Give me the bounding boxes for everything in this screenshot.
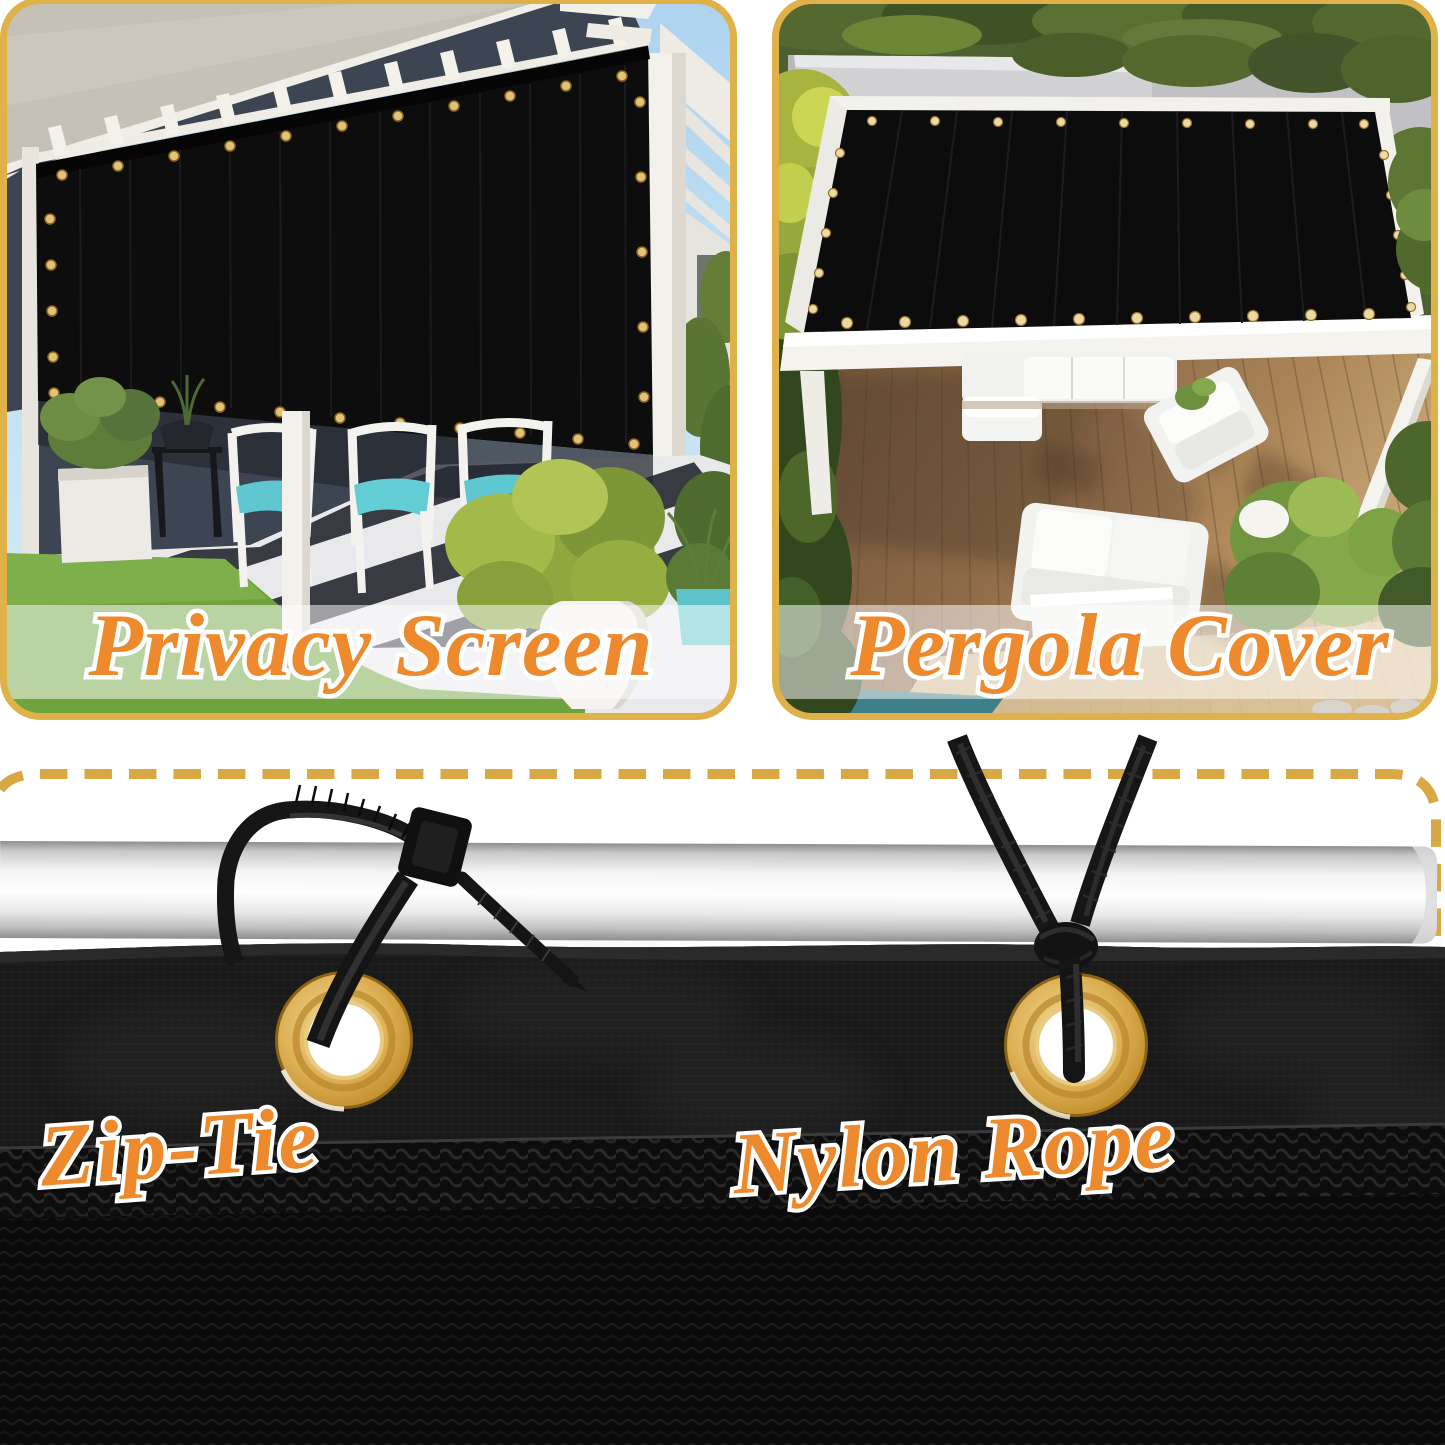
svg-text:Pergola Cover: Pergola Cover <box>849 597 1390 695</box>
svg-text:Zip-Tie: Zip-Tie <box>36 1089 323 1205</box>
svg-text:Privacy Screen: Privacy Screen <box>87 597 653 695</box>
